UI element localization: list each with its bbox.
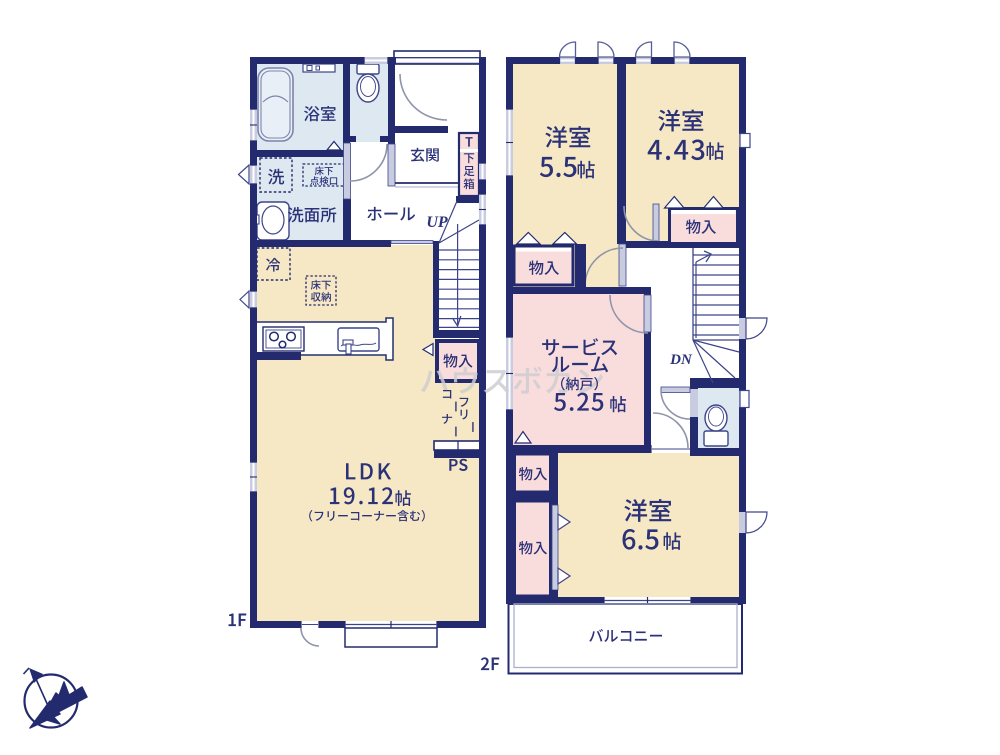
svg-text:DN: DN bbox=[669, 352, 693, 368]
svg-text:UP: UP bbox=[426, 214, 448, 231]
